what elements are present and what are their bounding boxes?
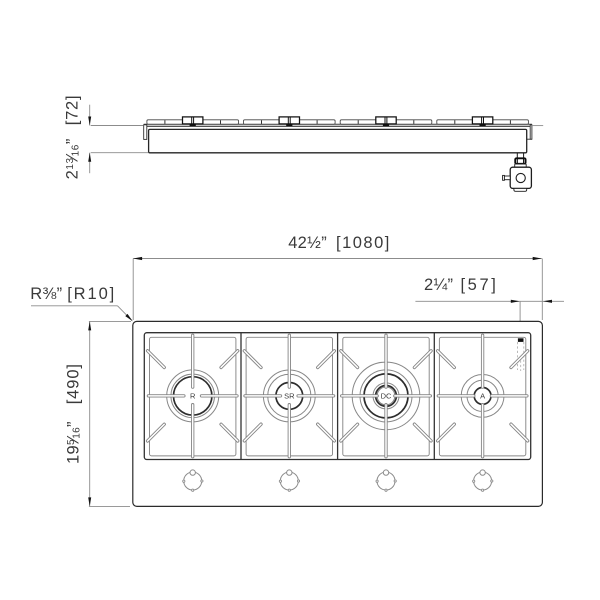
svg-text:[R10]: [R10] (67, 285, 116, 303)
svg-text:R: R (190, 392, 196, 401)
svg-text:SR: SR (284, 392, 295, 401)
svg-text:42½”: 42½” (288, 234, 327, 252)
svg-text:[72]: [72] (64, 95, 82, 126)
svg-text:195⁄16”: 195⁄16” (65, 421, 83, 464)
svg-text:213⁄16”: 213⁄16” (64, 138, 82, 179)
svg-text:DC: DC (381, 392, 392, 401)
svg-text:A: A (480, 392, 485, 401)
svg-text:R⅜”: R⅜” (30, 285, 62, 303)
svg-text:2¼”: 2¼” (424, 276, 453, 294)
svg-text:[1080]: [1080] (336, 234, 391, 252)
svg-text:[57]: [57] (461, 276, 499, 294)
svg-text:[490]: [490] (65, 363, 83, 404)
